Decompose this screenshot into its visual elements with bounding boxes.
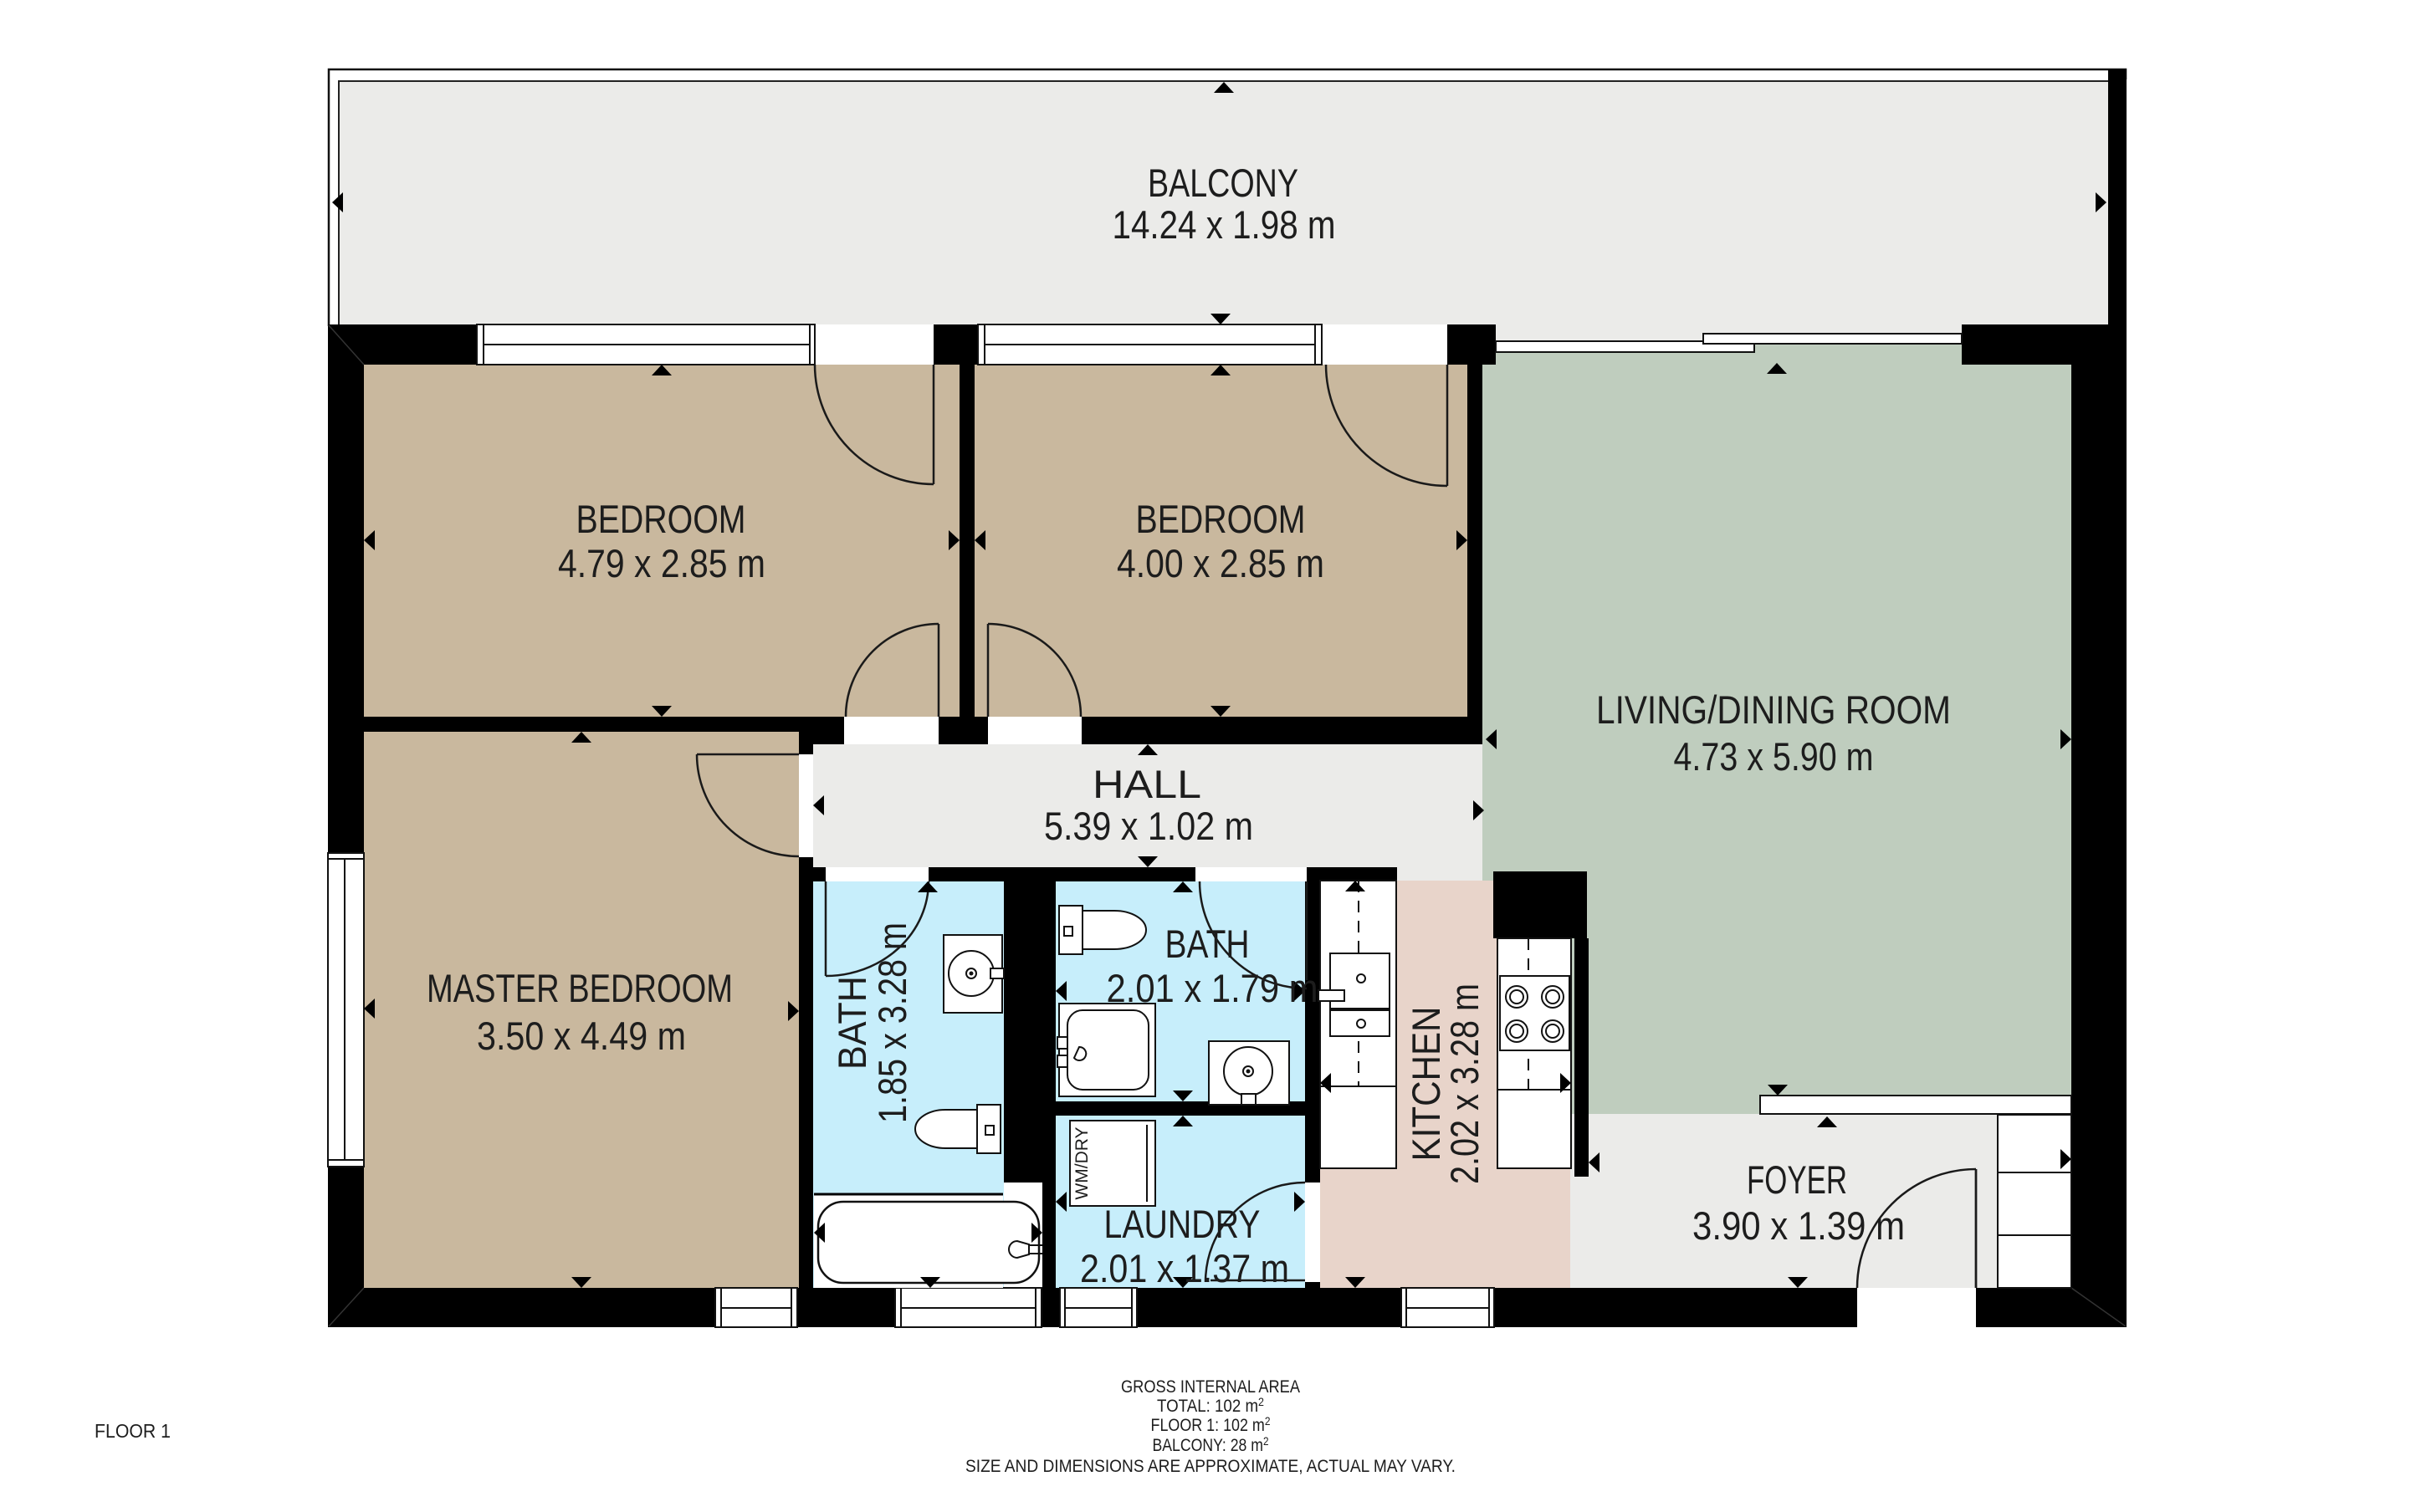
svg-text:2.01 x 1.79 m: 2.01 x 1.79 m [1107, 966, 1318, 1010]
svg-text:BEDROOM: BEDROOM [576, 497, 746, 541]
svg-text:BATH: BATH [1165, 922, 1250, 966]
svg-text:3.50 x 4.49 m: 3.50 x 4.49 m [477, 1014, 686, 1058]
svg-text:5.39 x 1.02 m: 5.39 x 1.02 m [1044, 804, 1253, 848]
svg-text:4.00 x 2.85 m: 4.00 x 2.85 m [1117, 541, 1324, 585]
svg-text:LIVING/DINING ROOM: LIVING/DINING ROOM [1596, 687, 1951, 732]
svg-text:2.01 x 1.37 m: 2.01 x 1.37 m [1080, 1246, 1289, 1290]
svg-text:HALL: HALL [1093, 762, 1201, 806]
svg-text:FOYER: FOYER [1747, 1157, 1847, 1202]
svg-text:1.85 x 3.28 m: 1.85 x 3.28 m [870, 922, 914, 1123]
svg-text:FLOOR 1: 102 m2: FLOOR 1: 102 m2 [1151, 1414, 1271, 1435]
svg-text:TOTAL: 102 m2: TOTAL: 102 m2 [1157, 1395, 1264, 1416]
svg-text:GROSS INTERNAL AREA: GROSS INTERNAL AREA [1121, 1377, 1300, 1397]
svg-text:WM/DRY: WM/DRY [1072, 1126, 1092, 1199]
svg-text:LAUNDRY: LAUNDRY [1104, 1202, 1261, 1246]
svg-text:4.79 x 2.85 m: 4.79 x 2.85 m [558, 541, 765, 585]
svg-text:14.24 x 1.98 m: 14.24 x 1.98 m [1113, 202, 1336, 247]
svg-text:BATH: BATH [830, 976, 874, 1070]
svg-text:MASTER BEDROOM: MASTER BEDROOM [427, 966, 733, 1010]
svg-text:4.73 x 5.90 m: 4.73 x 5.90 m [1674, 734, 1874, 779]
svg-text:BALCONY: BALCONY [1148, 161, 1298, 205]
svg-text:SIZE AND DIMENSIONS ARE APPROX: SIZE AND DIMENSIONS ARE APPROXIMATE, ACT… [965, 1457, 1456, 1476]
svg-text:BEDROOM: BEDROOM [1136, 497, 1306, 541]
svg-text:3.90 x 1.39 m: 3.90 x 1.39 m [1692, 1203, 1905, 1248]
svg-text:FLOOR 1: FLOOR 1 [95, 1420, 171, 1442]
svg-text:2.02 x 3.28 m: 2.02 x 3.28 m [1442, 983, 1487, 1184]
svg-text:BALCONY: 28 m2: BALCONY: 28 m2 [1153, 1434, 1269, 1455]
